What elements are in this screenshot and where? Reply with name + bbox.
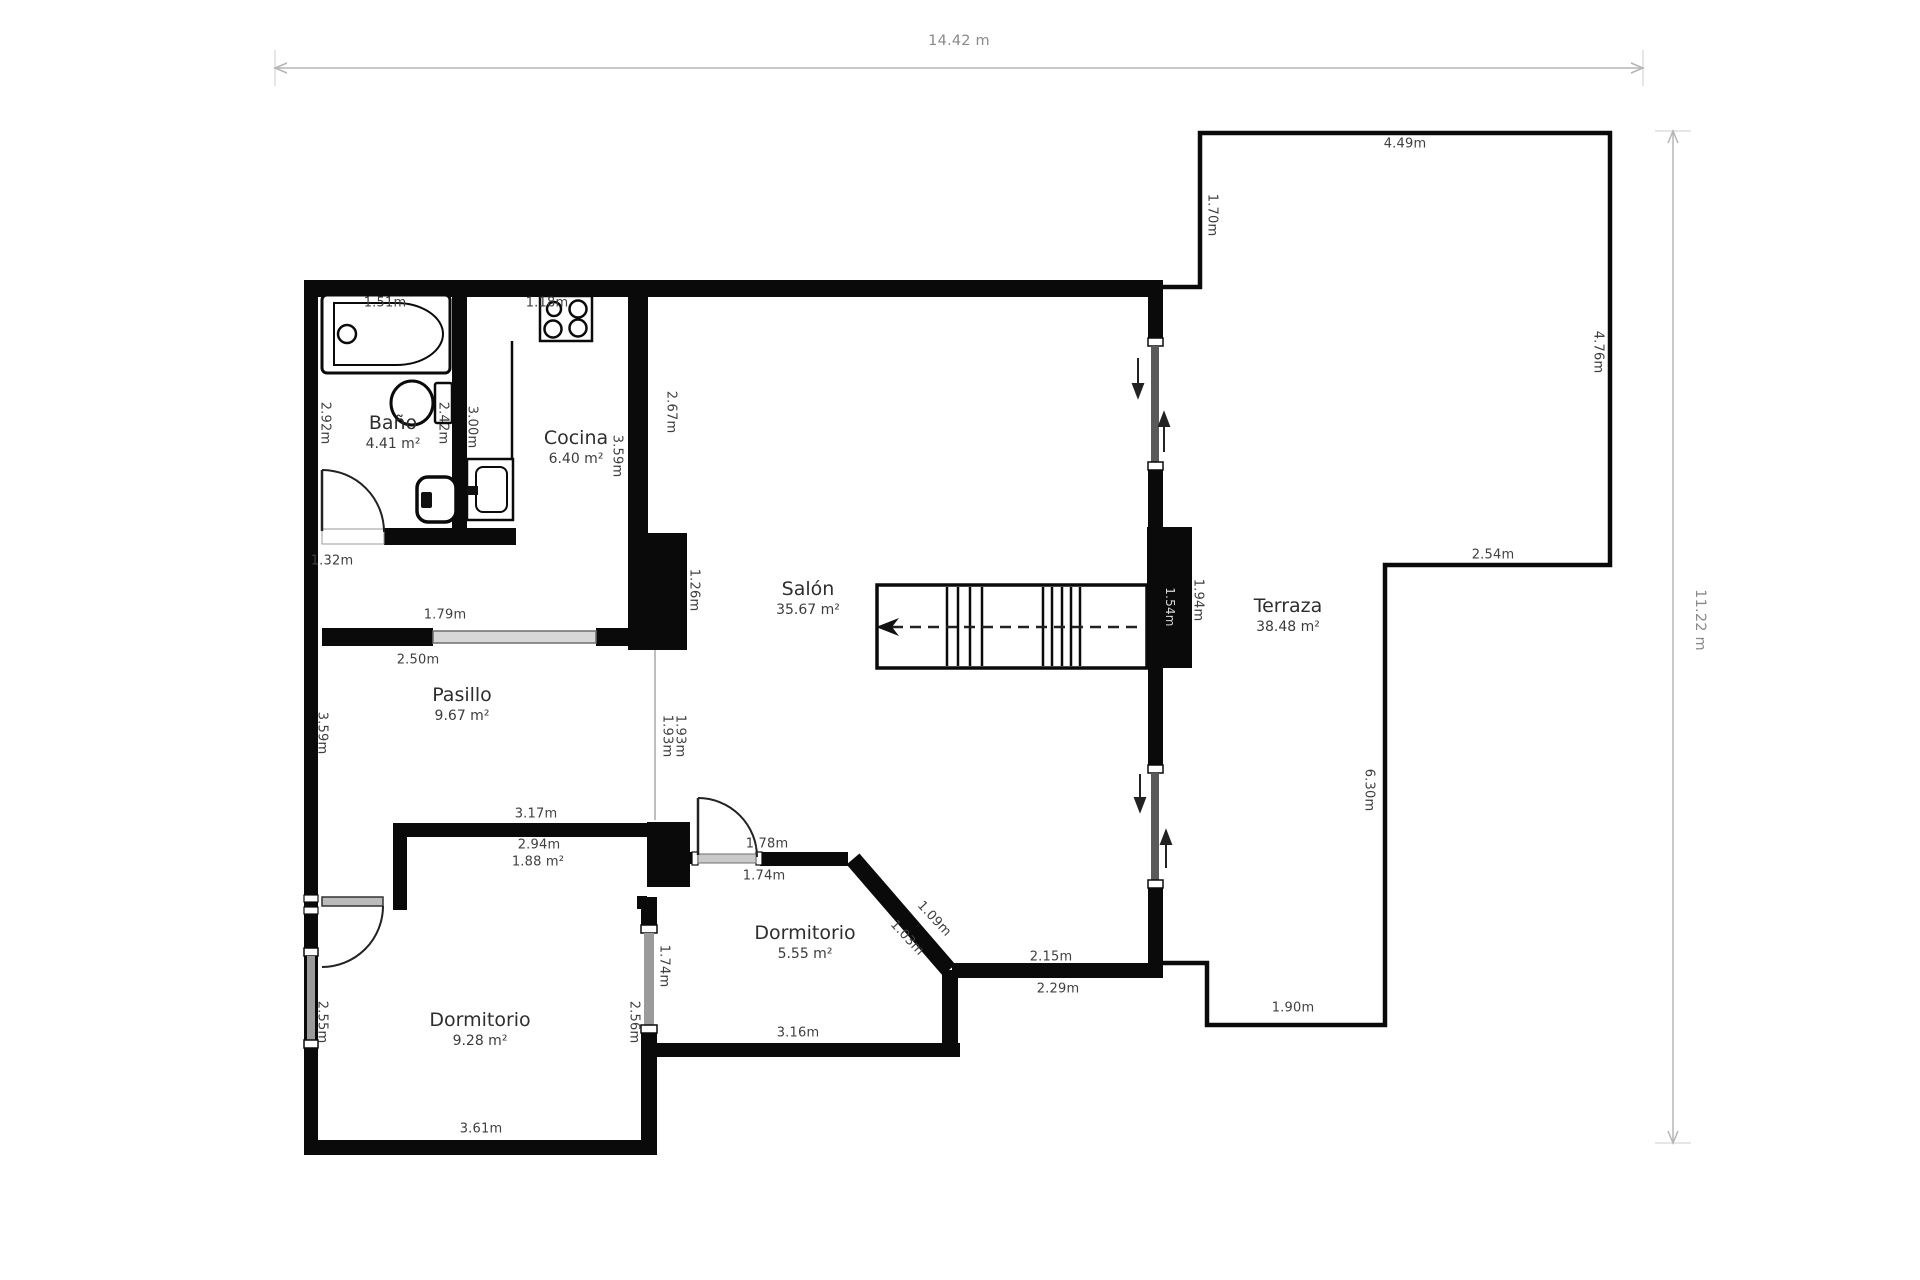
measurement-label: 1.54m — [1163, 587, 1177, 626]
room-label-cocina: Cocina6.40 m² — [544, 427, 608, 467]
measurement-label: 2.55m — [315, 1001, 330, 1044]
room-area: 38.48 m² — [1254, 619, 1323, 635]
measurement-label: 1.18m — [526, 296, 569, 311]
measurement-label: 1.93m — [673, 715, 688, 758]
measurement-label: 2.94m — [518, 838, 561, 853]
room-name: Cocina — [544, 427, 608, 449]
room-area: 9.67 m² — [432, 708, 492, 724]
measurement-label: 1.88 m² — [512, 855, 564, 870]
measurement-label: 1.51m — [364, 296, 407, 311]
measurement-label: 4.49m — [1384, 137, 1427, 152]
measurement-label: 1.94m — [1191, 579, 1206, 622]
measurement-label: 1.26m — [687, 569, 702, 612]
measurement-label: 1.03m — [887, 917, 927, 958]
room-area: 5.55 m² — [754, 946, 855, 962]
room-area: 4.41 m² — [366, 436, 421, 452]
measurement-label: 2.42m — [436, 402, 451, 445]
room-label-salon: Salón35.67 m² — [776, 578, 840, 618]
room-name: Salón — [776, 578, 840, 600]
measurement-label: 3.00m — [465, 406, 480, 449]
room-name: Terraza — [1254, 595, 1323, 617]
room-area: 35.67 m² — [776, 602, 840, 618]
room-name: Baño — [366, 412, 421, 434]
labels-layer: 14.42 m11.22 m1.51m1.18m2.92m2.42m3.00m3… — [0, 0, 1920, 1280]
floor-plan: 14.42 m11.22 m1.51m1.18m2.92m2.42m3.00m3… — [0, 0, 1920, 1280]
measurement-label: 3.61m — [460, 1122, 503, 1137]
room-area: 6.40 m² — [544, 451, 608, 467]
measurement-label: 2.56m — [627, 1001, 642, 1044]
room-label-terraza: Terraza38.48 m² — [1254, 595, 1323, 635]
room-label-bano: Baño4.41 m² — [366, 412, 421, 452]
measurement-label: 2.50m — [397, 653, 440, 668]
measurement-label: 1.09m — [914, 898, 954, 939]
measurement-label: 1.78m — [746, 837, 789, 852]
room-label-pasillo: Pasillo9.67 m² — [432, 684, 492, 724]
measurement-label: 1.79m — [424, 608, 467, 623]
measurement-label: 3.17m — [515, 807, 558, 822]
measurement-label: 1.32m — [311, 554, 354, 569]
measurement-label: 1.74m — [657, 945, 672, 988]
measurement-label: 6.30m — [1362, 769, 1377, 812]
room-name: Dormitorio — [754, 922, 855, 944]
room-area: 9.28 m² — [429, 1033, 530, 1049]
measurement-label: 3.59m — [315, 712, 330, 755]
measurement-label: 2.29m — [1037, 982, 1080, 997]
measurement-label: 1.90m — [1272, 1001, 1315, 1016]
measurement-label: 4.76m — [1591, 331, 1606, 374]
measurement-label: 2.67m — [664, 391, 679, 434]
measurement-label: 3.59m — [610, 435, 625, 478]
room-name: Pasillo — [432, 684, 492, 706]
room-name: Dormitorio — [429, 1009, 530, 1031]
measurement-label: 2.54m — [1472, 548, 1515, 563]
measurement-label: 1.70m — [1205, 194, 1220, 237]
measurement-label: 3.16m — [777, 1026, 820, 1041]
measurement-label: 1.74m — [743, 869, 786, 884]
room-label-dormitorio-1: Dormitorio9.28 m² — [429, 1009, 530, 1049]
dim-total-width: 14.42 m — [928, 33, 990, 49]
dim-total-height: 11.22 m — [1692, 589, 1708, 651]
measurement-label: 2.15m — [1030, 950, 1073, 965]
room-label-dormitorio-2: Dormitorio5.55 m² — [754, 922, 855, 962]
measurement-label: 2.92m — [318, 402, 333, 445]
